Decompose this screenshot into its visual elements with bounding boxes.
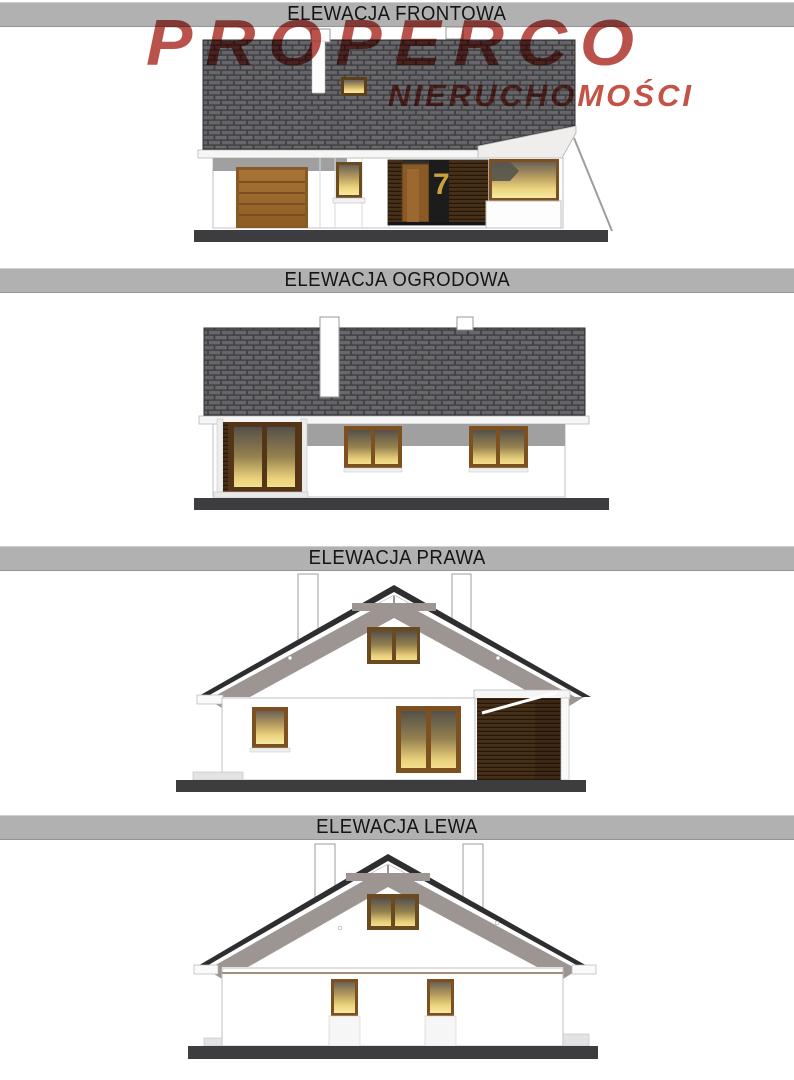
right-gutter-end bbox=[197, 695, 223, 704]
left-wall bbox=[222, 968, 563, 1046]
properco-logo-subtitle: NIERUCHOMOŚCI bbox=[388, 80, 694, 111]
front-living-window bbox=[486, 159, 561, 228]
front-ground bbox=[194, 230, 608, 242]
front-roof-window bbox=[341, 77, 367, 96]
right-porch bbox=[477, 692, 569, 780]
properco-logo: PROPERCO bbox=[146, 10, 647, 75]
porch-post bbox=[561, 698, 569, 780]
right-patio-window bbox=[396, 706, 461, 773]
garden-elevation-drawing bbox=[0, 270, 794, 540]
left-ground bbox=[188, 1046, 598, 1059]
garden-chimney-2 bbox=[457, 317, 473, 330]
front-entrance: 7 bbox=[388, 160, 488, 225]
elevations-page: PROPERCO NIERUCHOMOŚCI ELEWACJA FRONTOWA… bbox=[0, 0, 794, 1080]
garden-chimney-1 bbox=[320, 317, 339, 397]
right-plinth-step bbox=[193, 772, 243, 780]
garden-window-pair-1 bbox=[344, 426, 402, 472]
garden-roof bbox=[199, 317, 589, 424]
garden-ground bbox=[194, 498, 609, 510]
right-small-window bbox=[250, 707, 290, 752]
garage-door bbox=[236, 167, 308, 228]
left-plinth-step-2 bbox=[563, 1034, 589, 1046]
left-elevation-drawing bbox=[0, 810, 794, 1080]
front-balustrade bbox=[486, 201, 561, 228]
left-gutter-end-2 bbox=[572, 965, 596, 974]
front-eaves-fascia bbox=[198, 150, 482, 158]
left-plinth-step-1 bbox=[204, 1038, 222, 1046]
front-right-roofline bbox=[574, 138, 612, 231]
right-ground bbox=[176, 780, 586, 792]
left-window-2 bbox=[425, 979, 456, 1046]
left-gutter-end-1 bbox=[194, 965, 218, 974]
front-small-window bbox=[333, 162, 365, 203]
left-window-1 bbox=[329, 979, 360, 1046]
house-number: 7 bbox=[433, 168, 450, 201]
right-gable-window bbox=[367, 627, 420, 664]
garden-window-pair-2 bbox=[469, 426, 528, 472]
garden-terrace-door bbox=[214, 419, 308, 498]
right-elevation-drawing bbox=[0, 540, 794, 810]
left-gable-window bbox=[367, 894, 419, 930]
